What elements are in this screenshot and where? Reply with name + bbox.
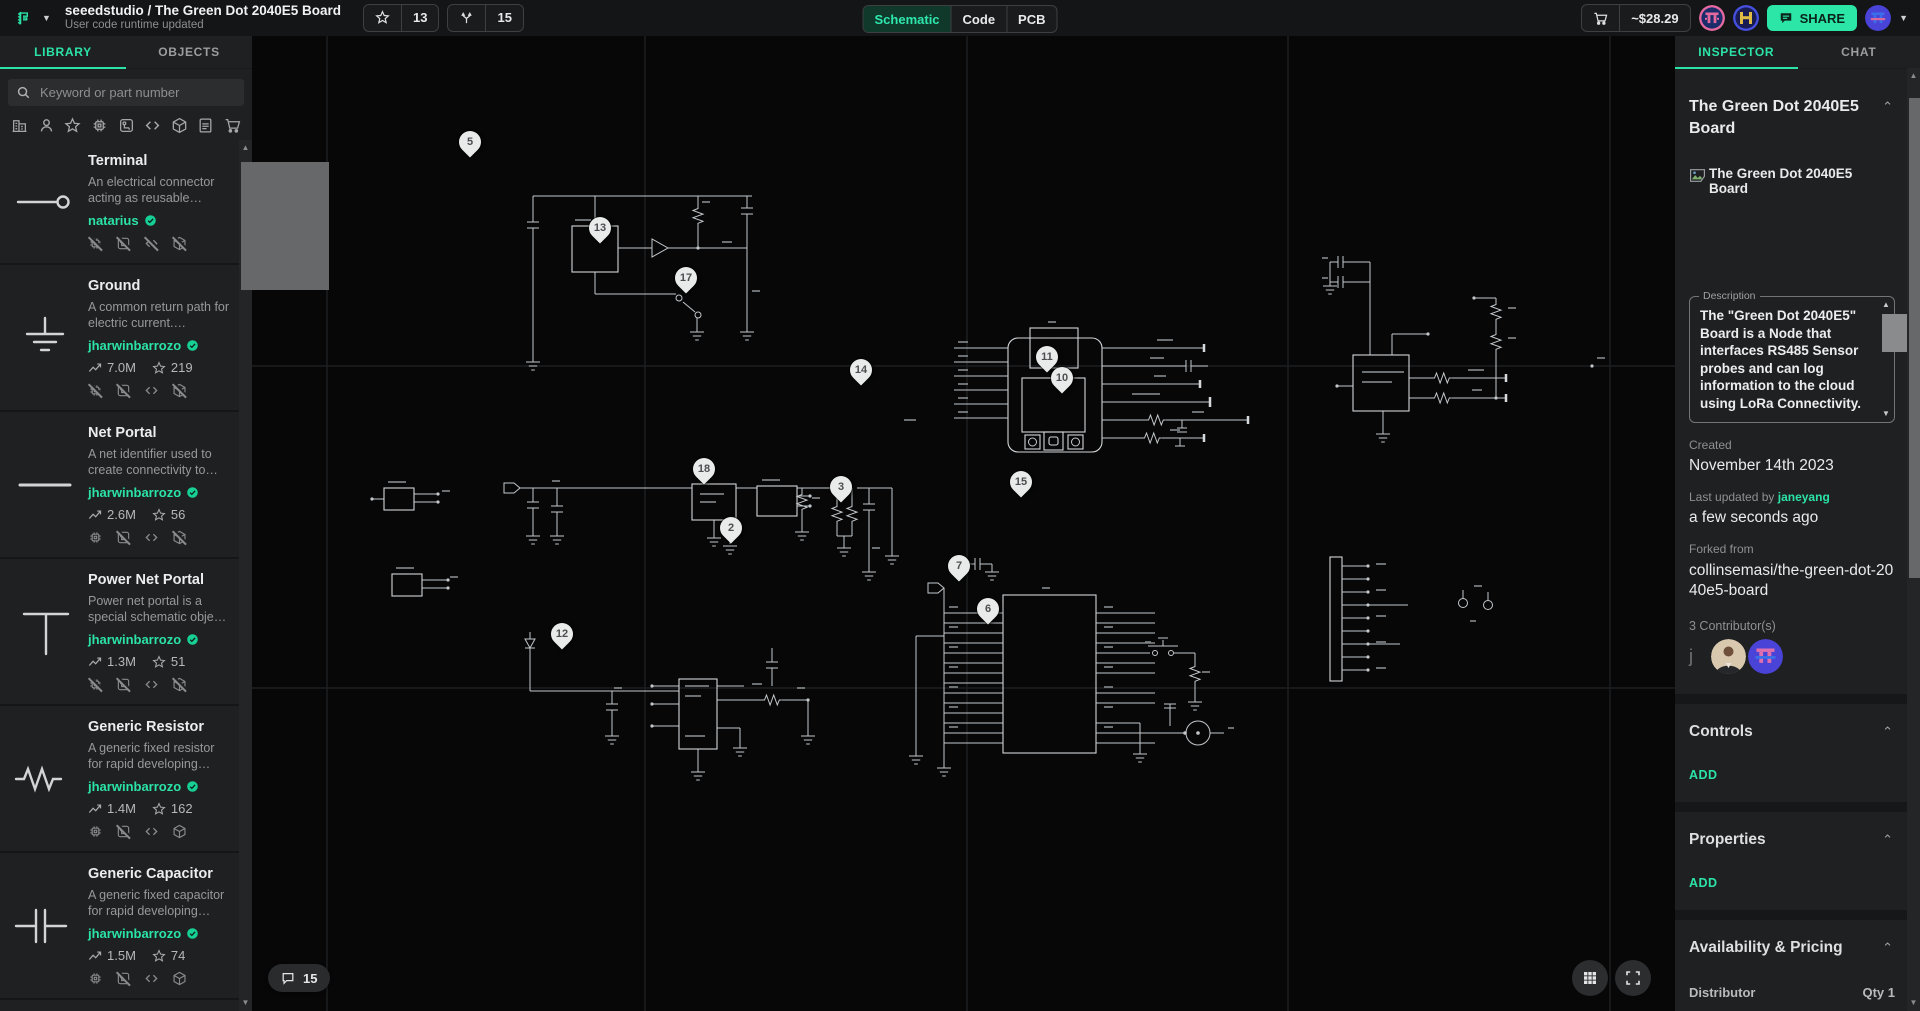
terminal-thumbnail xyxy=(0,153,88,251)
board-icon[interactable] xyxy=(118,117,135,134)
distributor-row: Distributor Qty 1 xyxy=(1689,985,1895,1000)
part-title: Ground xyxy=(88,278,231,294)
controls-section-header[interactable]: Controls ⌃ xyxy=(1689,721,1895,742)
updated-user-link[interactable]: janeyang xyxy=(1778,490,1830,504)
net-portal-thumbnail xyxy=(0,425,88,545)
user-menu-caret-icon[interactable]: ▼ xyxy=(1899,13,1908,23)
comments-count: 15 xyxy=(303,971,317,986)
board-image-missing: The Green Dot 2040E5 Board xyxy=(1689,166,1895,294)
board-icon xyxy=(116,824,131,839)
usage-count: 1.4M xyxy=(107,801,136,816)
comment-marker-2[interactable]: 2 xyxy=(715,512,746,543)
library-item-meta: TerminalAn electrical connector acting a… xyxy=(88,153,235,251)
part-availability-icons xyxy=(88,530,231,545)
code-icon xyxy=(144,236,159,251)
code-icon xyxy=(144,677,159,692)
library-item[interactable]: Power Net PortalPower net portal is a sp… xyxy=(0,559,239,706)
part-author-link[interactable]: jharwinbarrozo xyxy=(88,632,181,647)
scroll-up-icon[interactable]: ▲ xyxy=(239,142,252,154)
chip-icon xyxy=(88,383,103,398)
part-author-row: jharwinbarrozo xyxy=(88,338,231,353)
grid-toggle-button[interactable] xyxy=(1572,960,1608,996)
board-icon xyxy=(116,383,131,398)
capacitor-thumbnail xyxy=(0,866,88,986)
part-author-link[interactable]: jharwinbarrozo xyxy=(88,338,181,353)
usage-stat: 7.0M xyxy=(88,360,136,375)
library-item[interactable]: Generic ResistorA generic fixed resistor… xyxy=(0,706,239,853)
comment-marker-7[interactable]: 7 xyxy=(943,550,974,581)
forked-from-link[interactable]: collinsemasi/the-green-dot-2040e5-board xyxy=(1689,561,1895,601)
top-bar: ▼ seeedstudio / The Green Dot 2040E5 Boa… xyxy=(0,0,1920,36)
fullscreen-icon xyxy=(1625,970,1641,986)
properties-section-header[interactable]: Properties ⌃ xyxy=(1689,829,1895,850)
updated-label: Last updated by janeyang xyxy=(1689,490,1895,504)
chip-icon xyxy=(88,236,103,251)
description-text[interactable]: The "Green Dot 2040E5" Board is a Node t… xyxy=(1700,307,1876,413)
description-scrollbar[interactable]: ▲ ▼ xyxy=(1880,300,1892,419)
part-availability-icons xyxy=(88,971,231,986)
board-title-row: The Green Dot 2040E5 Board ⌃ xyxy=(1689,96,1895,140)
star-stat: 219 xyxy=(152,360,193,375)
inspector-scrollbar[interactable]: ▲ ▼ xyxy=(1907,68,1920,1011)
code-icon xyxy=(144,530,159,545)
star-count: 219 xyxy=(171,360,193,375)
comment-marker-label: 7 xyxy=(948,555,970,577)
fork-button[interactable]: 15 xyxy=(447,4,523,32)
scroll-up-icon[interactable]: ▲ xyxy=(1880,300,1892,310)
library-panel-tabs: LIBRARY OBJECTS xyxy=(0,36,252,69)
library-item[interactable]: TerminalAn electrical connector acting a… xyxy=(0,140,239,265)
code-icon xyxy=(144,383,159,398)
chevron-up-icon[interactable]: ⌃ xyxy=(1880,937,1895,958)
star-icon xyxy=(375,10,390,25)
part-description: A generic fixed capacitor for rapid deve… xyxy=(88,887,231,919)
trend-icon xyxy=(88,361,102,375)
star-stat: 162 xyxy=(152,801,193,816)
comment-marker-label: 5 xyxy=(459,131,481,153)
part-title: Net Portal xyxy=(88,425,231,441)
library-item-meta: Generic CapacitorA generic fixed capacit… xyxy=(88,866,235,986)
ground-thumbnail xyxy=(0,278,88,398)
part-author-link[interactable]: jharwinbarrozo xyxy=(88,926,181,941)
section-divider xyxy=(1675,910,1907,920)
scroll-up-icon[interactable]: ▲ xyxy=(1907,70,1920,82)
fork-count: 15 xyxy=(485,5,522,31)
project-title: seeedstudio / The Green Dot 2040E5 Board xyxy=(65,3,341,19)
board-icon xyxy=(116,530,131,545)
schematic-artwork xyxy=(252,36,1675,1011)
star-icon xyxy=(152,508,166,522)
tab-objects[interactable]: OBJECTS xyxy=(126,36,252,68)
star-icon[interactable] xyxy=(64,117,81,134)
user-avatar[interactable] xyxy=(1865,5,1891,31)
contributor-avatar-photo[interactable] xyxy=(1711,639,1746,674)
part-title: Generic Resistor xyxy=(88,719,231,735)
updated-label-text: Last updated by xyxy=(1689,490,1774,504)
chip-icon[interactable] xyxy=(91,117,108,134)
inspector-content: The Green Dot 2040E5 Board ⌃ The Green D… xyxy=(1675,68,1907,1011)
usage-stat: 1.5M xyxy=(88,948,136,963)
star-count: 74 xyxy=(171,948,185,963)
library-item-meta: Power Net PortalPower net portal is a sp… xyxy=(88,572,235,692)
library-item-meta: GroundA common return path for electric … xyxy=(88,278,235,398)
fork-icon xyxy=(459,10,474,25)
verified-icon xyxy=(186,633,199,646)
forked-label: Forked from xyxy=(1689,542,1895,556)
comment-marker-label: 17 xyxy=(675,267,697,289)
header-right: ~$28.29 SHARE ▼ xyxy=(1581,4,1920,32)
part-availability-icons xyxy=(88,236,231,251)
created-label: Created xyxy=(1689,438,1895,452)
section-divider xyxy=(1675,694,1907,704)
chevron-up-icon[interactable]: ⌃ xyxy=(1880,721,1895,742)
code-icon xyxy=(144,971,159,986)
comment-marker-label: 10 xyxy=(1051,367,1073,389)
part-title: Generic Capacitor xyxy=(88,866,231,882)
comment-icon xyxy=(281,971,295,985)
library-item-meta: Generic ResistorA generic fixed resistor… xyxy=(88,719,235,839)
verified-icon xyxy=(186,927,199,940)
comment-marker-label: 11 xyxy=(1036,346,1058,368)
tab-chat[interactable]: CHAT xyxy=(1798,36,1920,68)
usage-stat: 1.4M xyxy=(88,801,136,816)
controls-title: Controls xyxy=(1689,723,1880,741)
description-label: Description xyxy=(1699,290,1760,302)
star-stat: 51 xyxy=(152,654,185,669)
grid-icon xyxy=(1582,970,1598,986)
cube-icon xyxy=(172,530,187,545)
tab-pcb[interactable]: PCB xyxy=(1006,6,1056,32)
trend-icon xyxy=(88,508,102,522)
trend-icon xyxy=(88,655,102,669)
code-icon xyxy=(144,824,159,839)
trend-icon xyxy=(88,949,102,963)
chip-icon xyxy=(88,824,103,839)
power-net-portal-thumbnail xyxy=(0,572,88,692)
qty-label: Qty 1 xyxy=(1862,985,1895,1000)
verified-icon xyxy=(144,214,157,227)
library-filter-toolbar xyxy=(11,117,241,134)
logo-caret-down-icon[interactable]: ▼ xyxy=(42,13,51,23)
part-description: Power net portal is a special schematic … xyxy=(88,593,231,625)
tab-schematic[interactable]: Schematic xyxy=(864,6,951,32)
broken-image-icon xyxy=(1689,167,1706,184)
inspector-panel-tabs: INSPECTOR CHAT xyxy=(1675,36,1920,69)
chip-icon xyxy=(88,530,103,545)
part-author-link[interactable]: jharwinbarrozo xyxy=(88,485,181,500)
inspector-panel: INSPECTOR CHAT The Green Dot 2040E5 Boar… xyxy=(1675,36,1920,1011)
comment-marker-label: 12 xyxy=(551,623,573,645)
flux-logo-icon[interactable] xyxy=(10,5,36,31)
search-icon xyxy=(16,85,31,100)
part-author-row: jharwinbarrozo xyxy=(88,779,231,794)
share-label: SHARE xyxy=(1800,11,1846,26)
code-icon[interactable] xyxy=(144,117,161,134)
cube-icon xyxy=(172,383,187,398)
verified-icon xyxy=(186,339,199,352)
availability-section-header[interactable]: Availability & Pricing ⌃ xyxy=(1689,937,1895,958)
comment-marker-13[interactable]: 13 xyxy=(584,212,615,243)
part-author-link[interactable]: natarius xyxy=(88,213,139,228)
availability-title: Availability & Pricing xyxy=(1689,939,1880,957)
section-divider xyxy=(1675,802,1907,812)
board-icon xyxy=(116,236,131,251)
chip-icon xyxy=(88,677,103,692)
board-icon xyxy=(116,677,131,692)
cube-icon xyxy=(172,971,187,986)
inspector-scrollbar-thumb[interactable] xyxy=(1909,98,1920,578)
company-icon[interactable] xyxy=(11,117,28,134)
library-item[interactable]: Net PortalA net identifier used to creat… xyxy=(0,412,239,559)
tab-code[interactable]: Code xyxy=(951,6,1007,32)
fullscreen-button[interactable] xyxy=(1615,960,1651,996)
star-icon xyxy=(152,655,166,669)
contributors-label: 3 Contributor(s) xyxy=(1689,619,1895,633)
cube-icon xyxy=(172,824,187,839)
comment-marker-label: 6 xyxy=(977,598,999,620)
board-icon xyxy=(116,971,131,986)
comment-marker-12[interactable]: 12 xyxy=(546,618,577,649)
view-tabs: SchematicCodePCB xyxy=(863,5,1058,33)
library-item-meta: Net PortalA net identifier used to creat… xyxy=(88,425,235,545)
chip-icon xyxy=(88,971,103,986)
part-stats-row: 1.5M74 xyxy=(88,948,231,963)
usage-count: 7.0M xyxy=(107,360,136,375)
flux-editor-app: ▼ seeedstudio / The Green Dot 2040E5 Boa… xyxy=(0,0,1920,1011)
usage-count: 1.3M xyxy=(107,654,136,669)
library-list: TerminalAn electrical connector acting a… xyxy=(0,140,239,1011)
board-title: The Green Dot 2040E5 Board xyxy=(1689,96,1880,140)
part-author-row: natarius xyxy=(88,213,231,228)
part-author-row: jharwinbarrozo xyxy=(88,926,231,941)
library-item[interactable]: GroundA common return path for electric … xyxy=(0,265,239,412)
part-availability-icons xyxy=(88,677,231,692)
search-input[interactable] xyxy=(38,84,236,101)
part-description: A common return path for electric curren… xyxy=(88,299,231,331)
part-description: A net identifier used to create connecti… xyxy=(88,446,231,478)
comment-marker-label: 14 xyxy=(850,359,872,381)
cart-total: ~$28.29 xyxy=(1619,5,1689,31)
comment-marker-label: 2 xyxy=(720,517,742,539)
star-icon xyxy=(152,361,166,375)
tab-inspector[interactable]: INSPECTOR xyxy=(1675,36,1798,68)
updated-value: a few seconds ago xyxy=(1689,509,1895,527)
star-icon xyxy=(152,802,166,816)
properties-add-button[interactable]: ADD xyxy=(1689,876,1895,890)
person-icon[interactable] xyxy=(38,117,55,134)
usage-count: 2.6M xyxy=(107,507,136,522)
comment-marker-label: 18 xyxy=(693,458,715,480)
contributor-initial: j xyxy=(1689,646,1711,667)
part-availability-icons xyxy=(88,383,231,398)
comment-marker-label: 15 xyxy=(1010,471,1032,493)
part-stats-row: 7.0M219 xyxy=(88,360,231,375)
cube-icon[interactable] xyxy=(171,117,188,134)
cube-icon xyxy=(172,677,187,692)
star-count: 13 xyxy=(401,5,438,31)
star-count: 162 xyxy=(171,801,193,816)
schematic-canvas[interactable]: 513171411101832157612 15 xyxy=(252,36,1675,1011)
collaborator-avatar-gold[interactable] xyxy=(1733,5,1759,31)
star-count: 51 xyxy=(171,654,185,669)
library-search xyxy=(8,79,244,106)
verified-icon xyxy=(186,486,199,499)
star-stat: 56 xyxy=(152,507,185,522)
cart-button[interactable]: ~$28.29 xyxy=(1581,4,1690,32)
star-stat: 74 xyxy=(152,948,185,963)
scroll-down-icon[interactable]: ▼ xyxy=(1907,997,1920,1009)
comment-marker-label: 3 xyxy=(830,476,852,498)
created-value: November 14th 2023 xyxy=(1689,457,1895,475)
properties-title: Properties xyxy=(1689,831,1880,849)
chat-bubble-icon xyxy=(1779,11,1793,25)
usage-stat: 2.6M xyxy=(88,507,136,522)
comment-marker-10[interactable]: 10 xyxy=(1046,362,1077,393)
part-author-row: jharwinbarrozo xyxy=(88,632,231,647)
part-stats-row: 1.3M51 xyxy=(88,654,231,669)
board-image-alt-text: The Green Dot 2040E5 Board xyxy=(1709,166,1895,196)
part-title: Power Net Portal xyxy=(88,572,231,588)
runtime-status: User code runtime updated xyxy=(65,19,341,33)
library-scrollbar[interactable]: ▲ ▼ xyxy=(239,140,252,1011)
comments-pill[interactable]: 15 xyxy=(268,964,330,992)
comment-marker-14[interactable]: 14 xyxy=(845,354,876,385)
part-availability-icons xyxy=(88,824,231,839)
part-title: Terminal xyxy=(88,153,231,169)
part-stats-row: 2.6M56 xyxy=(88,507,231,522)
tab-library[interactable]: LIBRARY xyxy=(0,36,126,68)
comment-marker-label: 13 xyxy=(589,217,611,239)
collaborator-avatar-pink[interactable] xyxy=(1699,5,1725,31)
part-stats-row: 1.4M162 xyxy=(88,801,231,816)
contributors-row: j xyxy=(1689,639,1895,674)
contributor-avatar-pixel[interactable] xyxy=(1748,639,1783,674)
usage-stat: 1.3M xyxy=(88,654,136,669)
library-panel: LIBRARY OBJECTS TerminalAn electrical co… xyxy=(0,36,252,1011)
part-author-link[interactable]: jharwinbarrozo xyxy=(88,779,181,794)
part-description: A generic fixed resistor for rapid devel… xyxy=(88,740,231,772)
description-field[interactable]: Description The "Green Dot 2040E5" Board… xyxy=(1689,296,1895,423)
header-left: ▼ seeedstudio / The Green Dot 2040E5 Boa… xyxy=(0,3,524,32)
scroll-down-icon[interactable]: ▼ xyxy=(239,997,252,1009)
star-count: 56 xyxy=(171,507,185,522)
comment-marker-18[interactable]: 18 xyxy=(688,453,719,484)
comment-marker-15[interactable]: 15 xyxy=(1005,466,1036,497)
resistor-thumbnail xyxy=(0,719,88,839)
distributor-label: Distributor xyxy=(1689,985,1862,1000)
cube-icon xyxy=(172,236,187,251)
chevron-up-icon[interactable]: ⌃ xyxy=(1880,829,1895,850)
comment-marker-5[interactable]: 5 xyxy=(454,126,485,157)
trend-icon xyxy=(88,802,102,816)
cart-icon[interactable] xyxy=(224,117,241,134)
library-item[interactable]: Generic CapacitorA generic fixed capacit… xyxy=(0,853,239,1000)
library-item[interactable]: Generic InductorA generic fixed inductor… xyxy=(0,1000,239,1011)
share-button[interactable]: SHARE xyxy=(1767,5,1858,31)
pdf-icon[interactable] xyxy=(197,117,214,134)
verified-icon xyxy=(186,780,199,793)
comment-marker-17[interactable]: 17 xyxy=(670,262,701,293)
comment-marker-6[interactable]: 6 xyxy=(972,593,1003,624)
star-icon xyxy=(152,949,166,963)
comment-marker-3[interactable]: 3 xyxy=(825,471,856,502)
part-author-row: jharwinbarrozo xyxy=(88,485,231,500)
cart-icon xyxy=(1593,11,1608,26)
scroll-down-icon[interactable]: ▼ xyxy=(1880,409,1892,419)
description-scrollbar-thumb[interactable] xyxy=(1882,314,1907,352)
library-scrollbar-thumb[interactable] xyxy=(241,162,329,290)
chevron-up-icon[interactable]: ⌃ xyxy=(1880,96,1895,117)
part-description: An electrical connector acting as reusab… xyxy=(88,174,231,206)
star-button[interactable]: 13 xyxy=(363,4,439,32)
breadcrumb: seeedstudio / The Green Dot 2040E5 Board… xyxy=(65,3,341,32)
usage-count: 1.5M xyxy=(107,948,136,963)
controls-add-button[interactable]: ADD xyxy=(1689,768,1895,782)
